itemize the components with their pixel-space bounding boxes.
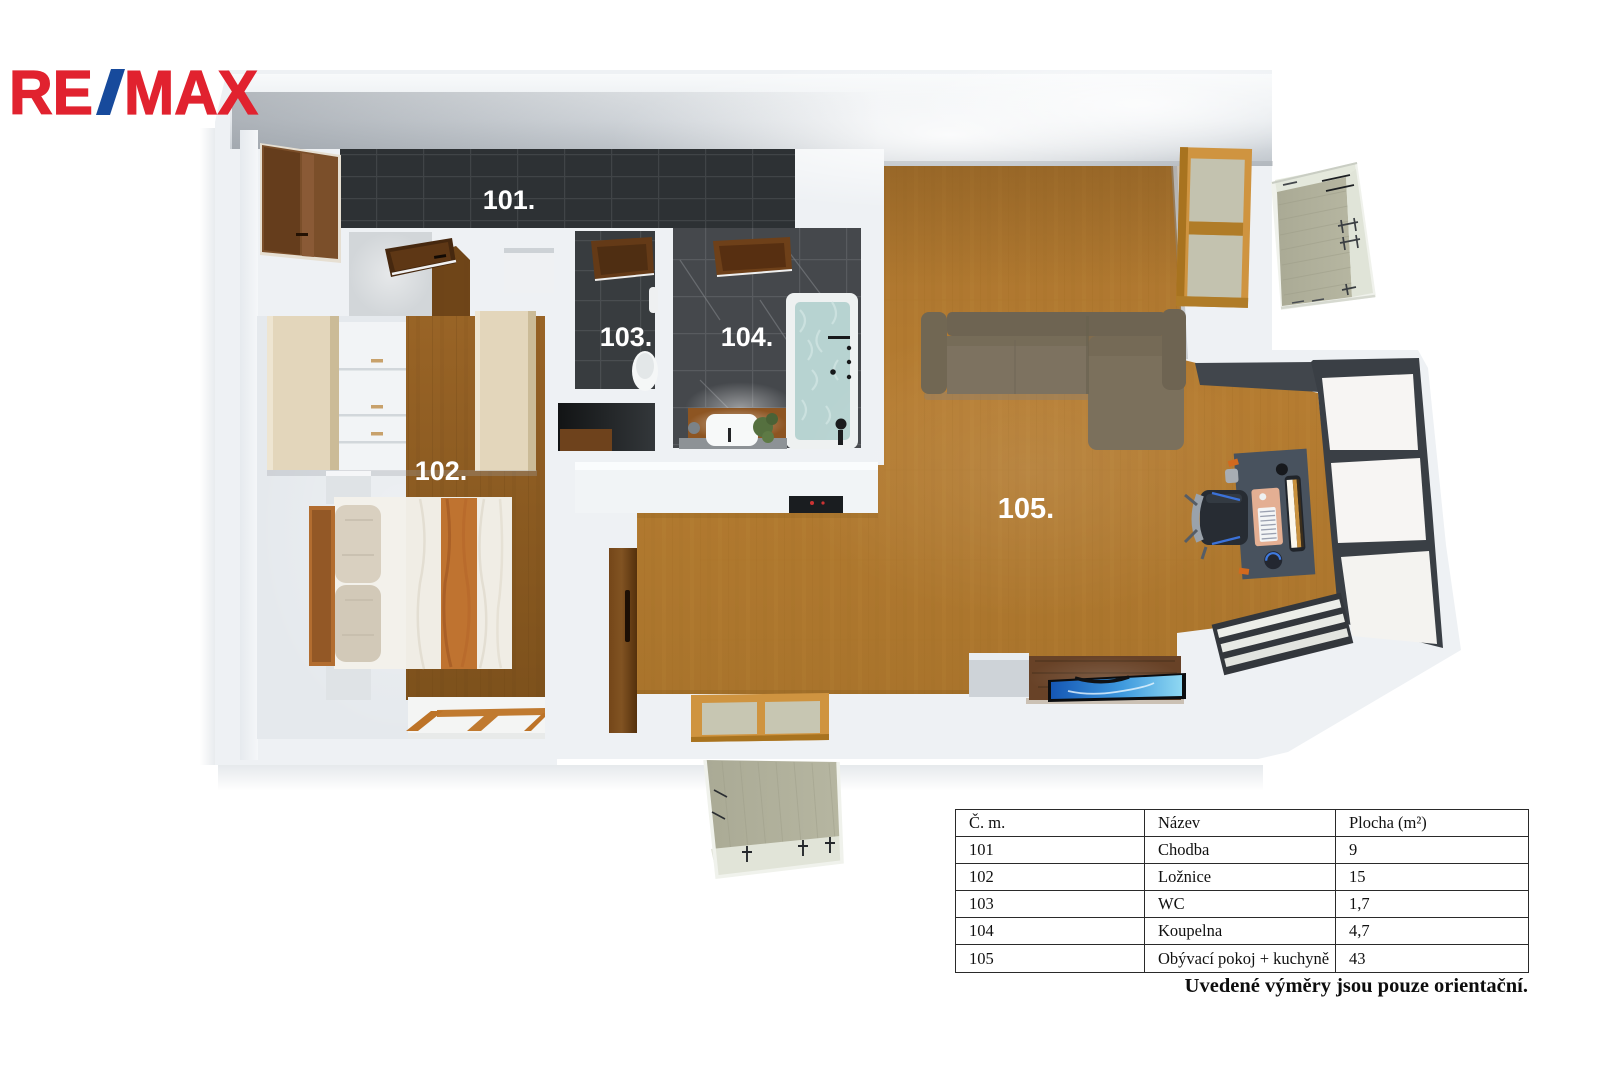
- svg-text:102.: 102.: [415, 456, 468, 486]
- svg-text:103.: 103.: [600, 322, 653, 352]
- svg-text:105.: 105.: [998, 493, 1054, 525]
- svg-text:101.: 101.: [483, 185, 536, 215]
- svg-text:104.: 104.: [721, 322, 774, 352]
- svg-text:RE: RE: [9, 59, 93, 128]
- svg-text:MAX: MAX: [124, 59, 258, 128]
